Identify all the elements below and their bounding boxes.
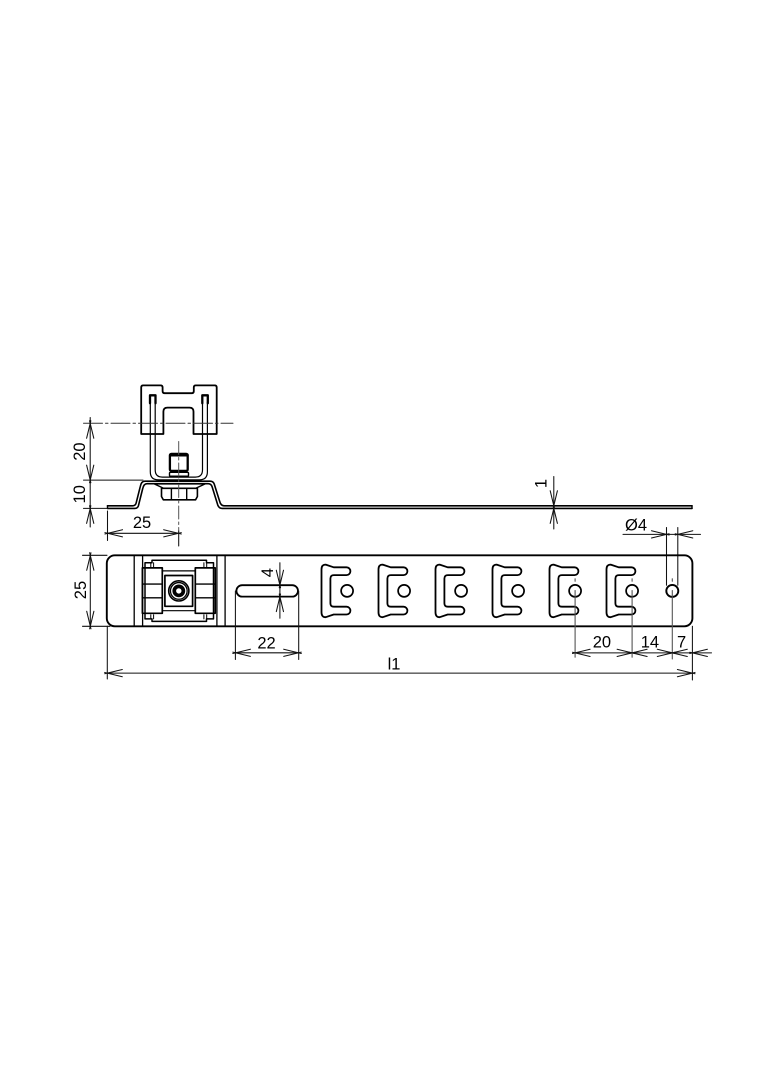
svg-text:10: 10: [71, 485, 89, 503]
svg-text:25: 25: [133, 514, 151, 532]
svg-text:Ø4: Ø4: [625, 516, 647, 534]
svg-text:7: 7: [677, 634, 686, 652]
svg-text:14: 14: [641, 634, 659, 652]
svg-text:25: 25: [72, 581, 90, 599]
svg-text:20: 20: [71, 442, 89, 460]
svg-text:4: 4: [259, 568, 277, 577]
svg-text:22: 22: [257, 635, 275, 653]
svg-text:l1: l1: [388, 656, 401, 674]
svg-text:20: 20: [593, 634, 611, 652]
svg-text:1: 1: [532, 479, 550, 488]
